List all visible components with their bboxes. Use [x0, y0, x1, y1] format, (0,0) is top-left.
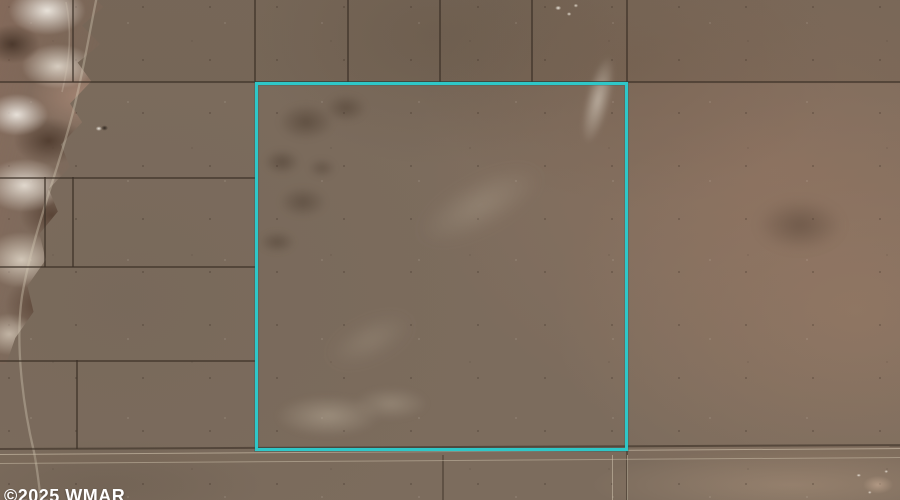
parcel-line-v-top-1 — [72, 0, 74, 82]
terrain-feature-white-rocks — [548, 0, 582, 20]
small-structure — [94, 122, 110, 134]
road-edge-line — [627, 455, 628, 500]
parcel-line-v-top-5 — [531, 0, 533, 82]
watermark-text: ©2025 WMAR — [4, 486, 125, 500]
parcel-line-v-south-1 — [442, 455, 444, 500]
parcel-boundary-highlight — [255, 82, 628, 451]
parcel-line-v-top-6 — [626, 0, 628, 82]
parcel-line-v-west-3 — [76, 360, 78, 449]
parcel-line-v-top-3 — [347, 0, 349, 82]
parcel-line-v-top-2 — [254, 0, 256, 82]
terrain-feature-dark-patch — [735, 180, 865, 270]
parcel-line-v-top-4 — [439, 0, 441, 82]
terrain-feature-corner-speckles — [845, 462, 900, 500]
parcel-line-v-west-1 — [44, 177, 46, 267]
road-edge-line — [612, 455, 613, 500]
parcel-line-h-west-2 — [0, 266, 258, 268]
parcel-line-h-west-3 — [0, 360, 258, 362]
parcel-line-v-west-2 — [72, 177, 74, 267]
dirt-road-vertical — [612, 455, 628, 500]
aerial-map-image: ©2025 WMAR — [0, 0, 900, 500]
parcel-line-h-west-1 — [0, 177, 258, 179]
